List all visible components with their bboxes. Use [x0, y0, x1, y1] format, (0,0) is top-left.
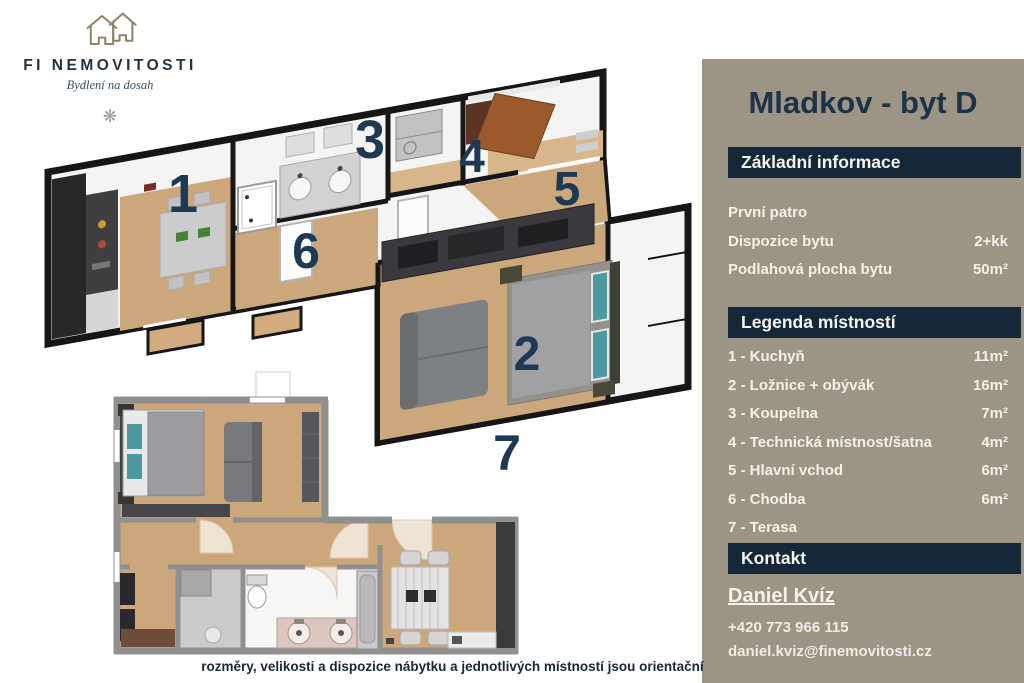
legend-label: 4 - Technická místnost/šatna: [728, 429, 932, 458]
room-label-1: 1: [168, 164, 198, 224]
listing-title: Mladkov - byt D: [702, 85, 1024, 121]
legend-value: 11m²: [974, 343, 1008, 372]
basic-info-rows: První patro Dispozice bytu 2+kk Podlahov…: [728, 199, 1008, 285]
brand-name: FI NEMOVITOSTI: [10, 57, 210, 75]
legend-row: 6 - Chodba 6m²: [728, 486, 1008, 515]
ornament-icon: ❋: [10, 107, 210, 127]
room-label-2: 2: [514, 328, 541, 381]
legend-row: 2 - Ložnice + obývák 16m²: [728, 372, 1008, 401]
contact-name: Daniel Kvíz: [728, 585, 835, 608]
section-header-contact: Kontakt: [728, 543, 1021, 574]
room-label-5: 5: [554, 163, 581, 216]
legend-row: 5 - Hlavní vchod 6m²: [728, 457, 1008, 486]
wardrobe-3d: [52, 173, 86, 339]
bathtub-3d: [238, 181, 276, 234]
legend-label: 1 - Kuchyň: [728, 343, 805, 372]
legend-label: 3 - Koupelna: [728, 400, 818, 429]
legend-value: 4m²: [981, 429, 1008, 458]
flyer-canvas: 1 3 4 5 6 2 7: [0, 0, 1024, 683]
contact-email: daniel.kviz@finemovitosti.cz: [728, 643, 932, 660]
brand-tagline: Bydlení na dosah: [10, 78, 210, 93]
section-header-basic-info: Základní informace: [728, 147, 1021, 178]
contact-phone: +420 773 966 115: [728, 619, 849, 636]
logo: FI NEMOVITOSTI Bydlení na dosah ❋: [10, 8, 210, 127]
legend-label: 6 - Chodba: [728, 486, 806, 515]
wardrobe-2d: [302, 412, 319, 502]
legend-label: 2 - Ložnice + obývák: [728, 372, 874, 401]
info-value: 50m²: [973, 256, 1008, 285]
section-header-legend: Legenda místností: [728, 307, 1021, 338]
legend-row: 3 - Koupelna 7m²: [728, 400, 1008, 429]
room-label-3: 3: [355, 110, 385, 170]
legend-rows: 1 - Kuchyň 11m² 2 - Ložnice + obývák 16m…: [728, 343, 1008, 543]
info-label: Podlahová plocha bytu: [728, 256, 892, 285]
dining-table-2d: [391, 567, 449, 629]
legend-row: 4 - Technická místnost/šatna 4m²: [728, 429, 1008, 458]
sideboard-2d: [122, 504, 230, 517]
room-label-4: 4: [459, 130, 485, 182]
info-panel: Mladkov - byt D Základní informace První…: [702, 59, 1024, 683]
legend-label: 7 - Terasa: [728, 514, 797, 543]
room-label-6: 6: [292, 223, 320, 279]
info-row: První patro: [728, 199, 1008, 228]
legend-row: 1 - Kuchyň 11m²: [728, 343, 1008, 372]
legend-value: 6m²: [981, 486, 1008, 515]
info-row: Podlahová plocha bytu 50m²: [728, 256, 1008, 285]
legend-value: 7m²: [981, 400, 1008, 429]
legend-label: 5 - Hlavní vchod: [728, 457, 843, 486]
legend-row: 7 - Terasa: [728, 514, 1008, 543]
houses-logo-icon: [78, 8, 142, 48]
info-label: Dispozice bytu: [728, 228, 834, 257]
kitchen-cabinets-2d: [496, 522, 515, 648]
legend-value: 16m²: [973, 372, 1008, 401]
legend-value: 6m²: [981, 457, 1008, 486]
info-value: 2+kk: [974, 228, 1008, 257]
info-label: První patro: [728, 199, 807, 228]
toilet-2d: [248, 586, 266, 608]
info-row: Dispozice bytu 2+kk: [728, 228, 1008, 257]
disclaimer-text: rozměry, velikosti a dispozice nábytku a…: [200, 659, 705, 674]
room-label-7: 7: [493, 425, 521, 481]
technical-room-3d: [396, 109, 442, 161]
